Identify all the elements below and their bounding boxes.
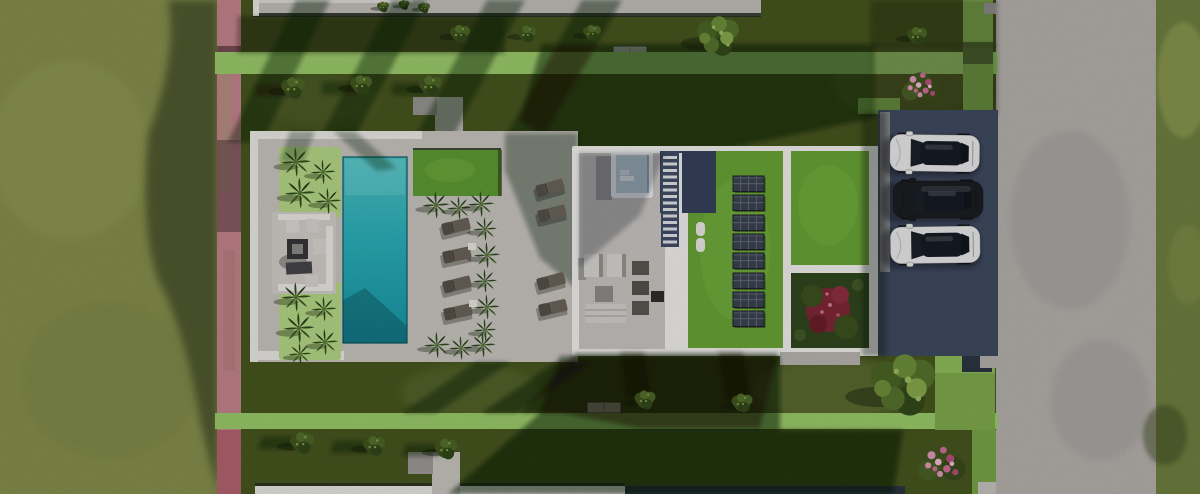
grain-texture xyxy=(0,0,1200,494)
aerial-villa-render xyxy=(0,0,1200,494)
